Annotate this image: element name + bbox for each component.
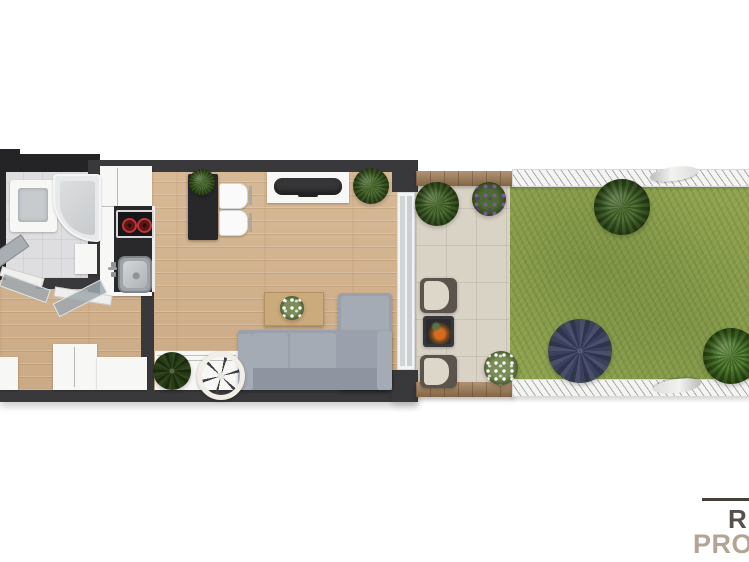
cooktop <box>116 210 154 238</box>
garden-fence-bottom <box>512 379 749 397</box>
bathroom-cabinet <box>75 244 97 274</box>
wall-terrace-top-block <box>392 160 418 192</box>
sink-faucet-knob-bottom <box>111 272 116 277</box>
dining-chair-bottom <box>219 210 248 236</box>
hall-plant <box>153 352 191 390</box>
terrace-chair-bottom <box>420 355 457 388</box>
cooktop-burner-left <box>122 218 137 233</box>
desk-plant <box>189 169 215 195</box>
sofa-backrest <box>238 368 392 390</box>
sink-basin <box>123 261 147 288</box>
terrace-table <box>423 316 454 347</box>
ceiling-fan <box>197 352 245 400</box>
terrace-table-top <box>426 319 451 344</box>
kitchen-sink <box>118 256 152 293</box>
logo-divider-line <box>702 498 749 501</box>
terrace-plant-green <box>415 182 459 226</box>
logo-prefix-text: PRO <box>693 531 749 558</box>
hall-wardrobe-tall <box>53 344 97 390</box>
coffee-table-flowers <box>280 296 304 320</box>
wall-terrace-bottom-block <box>392 370 418 402</box>
sliding-door-glass-left <box>400 196 405 366</box>
cooktop-burner-right <box>137 218 152 233</box>
tv <box>274 178 342 195</box>
garden-bush-top <box>594 179 650 235</box>
floor-plan-render: R PRO <box>0 0 749 562</box>
terrace-chair-top <box>420 278 457 313</box>
washing-machine <box>10 180 57 232</box>
dining-chair-top <box>219 183 248 209</box>
entry-cabinet <box>0 357 18 390</box>
garden-plant-purple <box>548 319 612 383</box>
terrace-chair-top-cushion <box>424 281 449 310</box>
terrace-plant-purple-flowers <box>472 182 506 216</box>
washing-machine-lid <box>18 188 48 222</box>
sofa-cushion-left <box>253 333 288 369</box>
hall-wardrobe-low <box>97 357 147 390</box>
sink-faucet-spout <box>108 267 117 270</box>
terrace-chair-bottom-cushion <box>424 358 449 385</box>
bathtub-basin <box>60 181 95 235</box>
sliding-door-glass-right <box>407 196 412 366</box>
tv-stand <box>298 193 318 197</box>
living-corner-plant <box>353 168 389 204</box>
sofa-armrest-right <box>377 331 392 390</box>
sofa-cushion-right <box>290 333 336 369</box>
